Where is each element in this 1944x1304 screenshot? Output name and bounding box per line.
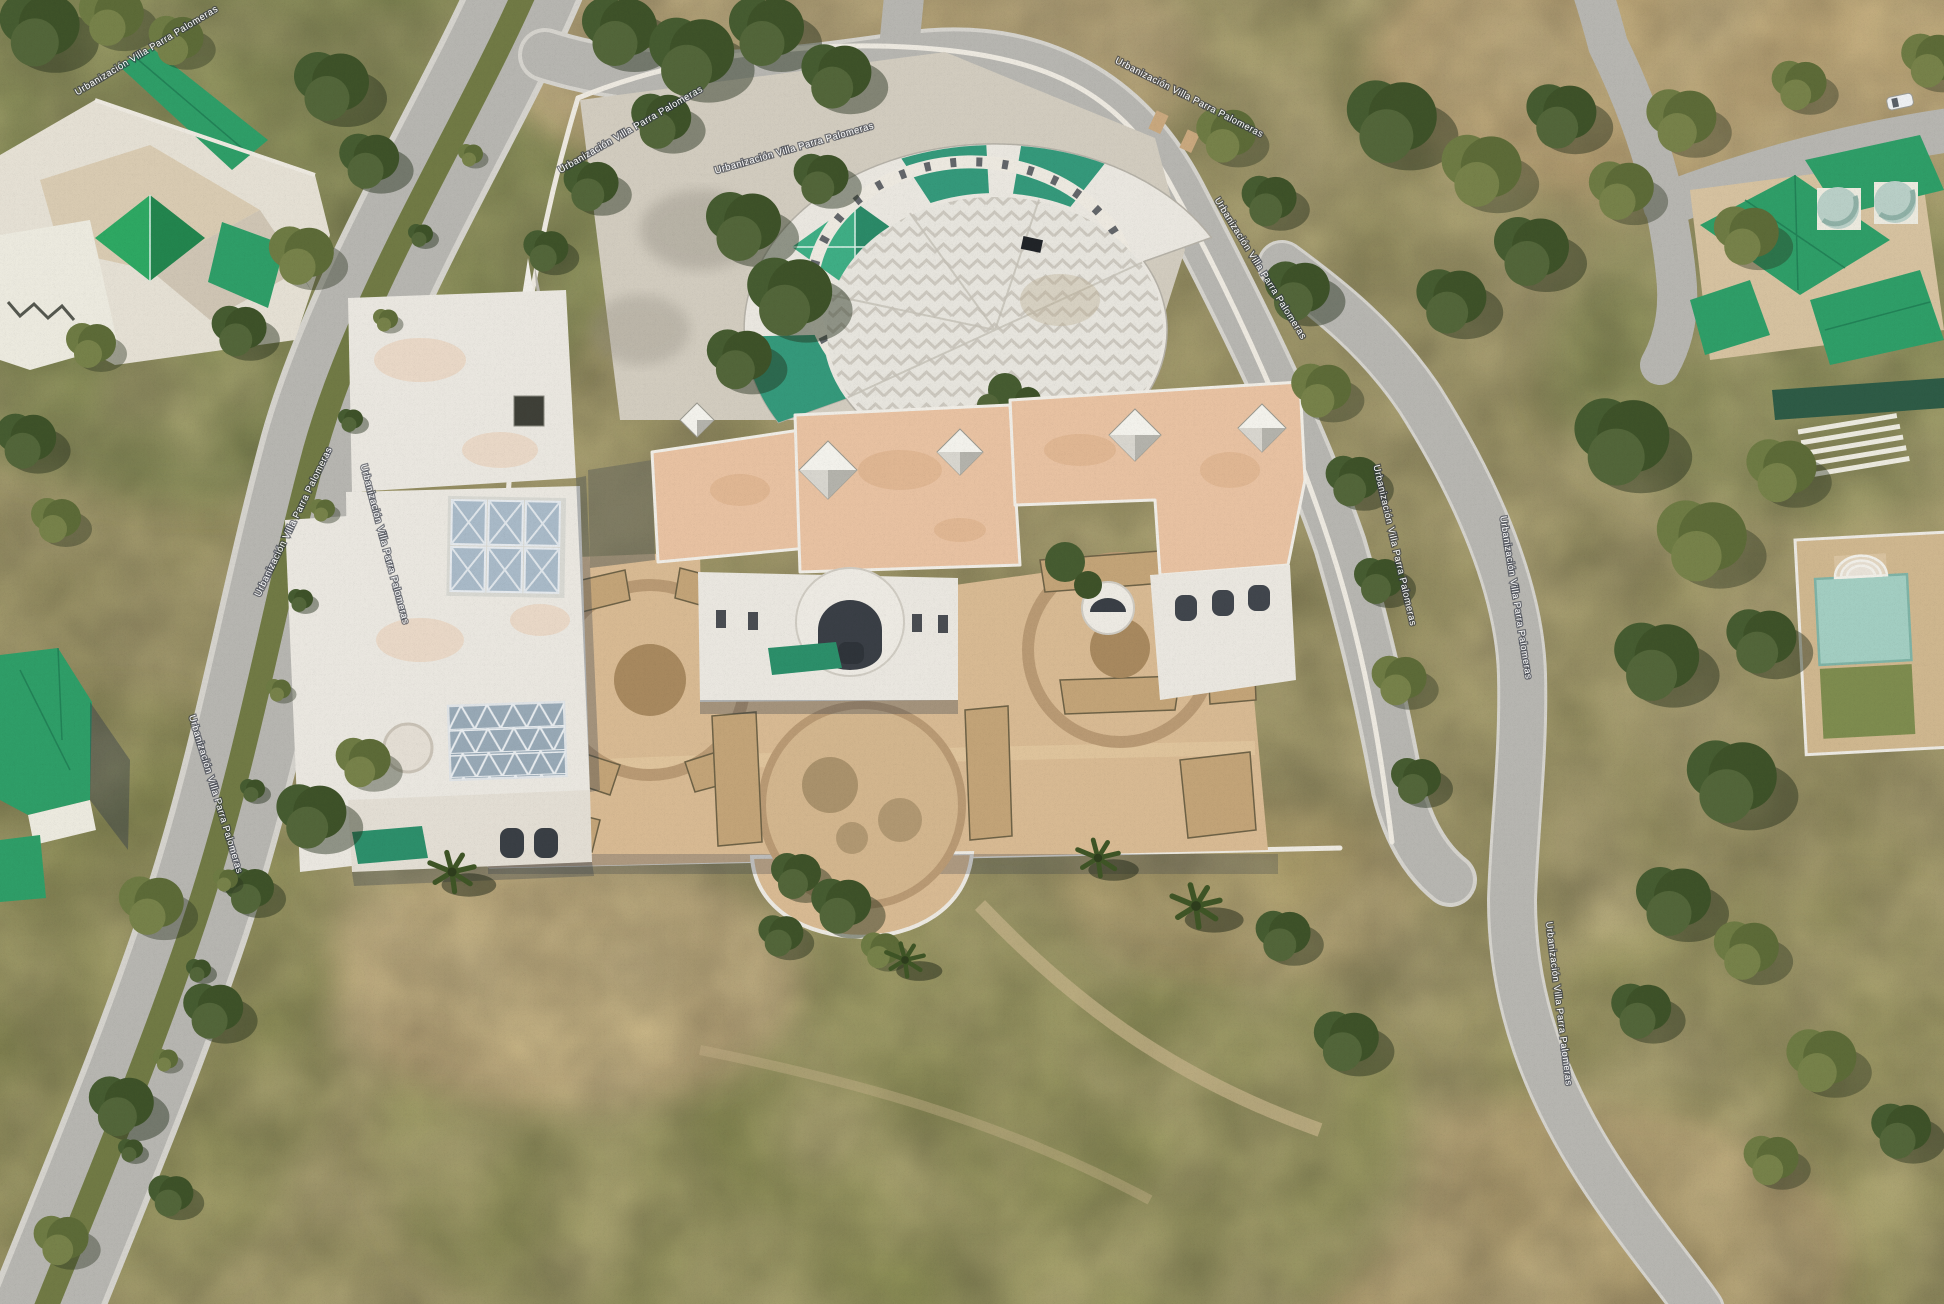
map-canvas[interactable]: Urbanización Villa Parra PalomerasUrbani… <box>0 0 1944 1304</box>
photo-grain <box>0 0 1944 1304</box>
satellite-imagery: Urbanización Villa Parra PalomerasUrbani… <box>0 0 1944 1304</box>
